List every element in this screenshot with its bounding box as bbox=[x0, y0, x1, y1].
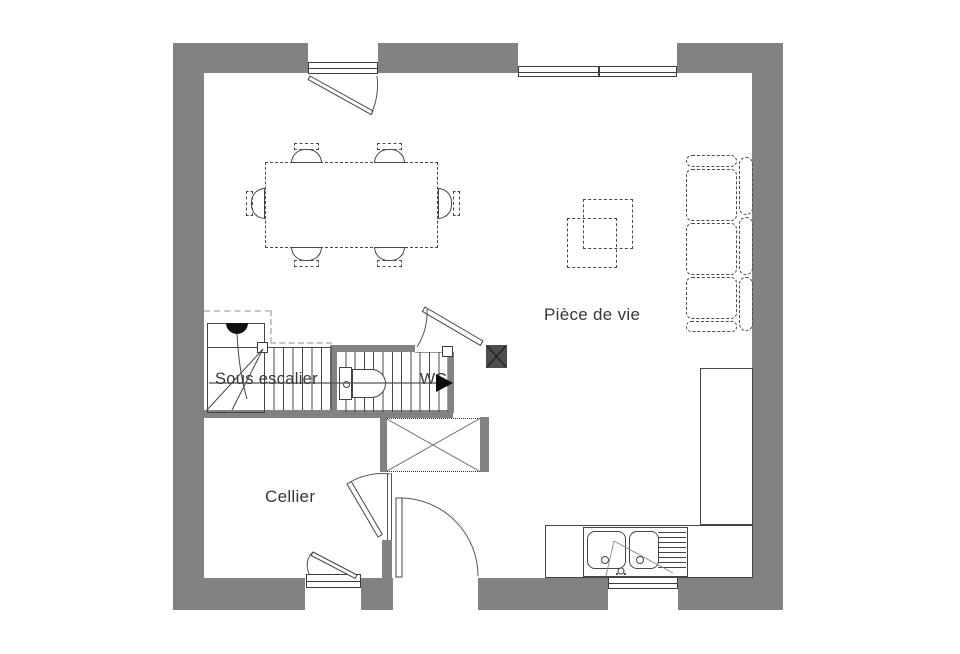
window-kitchen-midline bbox=[609, 583, 677, 584]
wall-left bbox=[173, 43, 204, 610]
sofa-seat-1 bbox=[686, 169, 737, 221]
toilet-bowl bbox=[352, 369, 386, 398]
kitchen-tall-unit bbox=[700, 368, 753, 525]
coffee-table-front bbox=[567, 218, 617, 268]
sofa-backrest-2 bbox=[739, 217, 753, 275]
floor-above-outline-2 bbox=[270, 310, 272, 343]
wall-tech-right bbox=[480, 417, 489, 472]
wall-bottom-segment-4 bbox=[678, 578, 783, 610]
chair-seat-left bbox=[251, 188, 265, 219]
floor-plan: WC bbox=[0, 0, 960, 654]
sink-drain-right bbox=[636, 556, 644, 564]
sofa-seat-2 bbox=[686, 223, 737, 275]
floor-above-outline-3 bbox=[270, 342, 332, 344]
wall-entry-stub bbox=[382, 540, 392, 578]
wc-door-swing-arc bbox=[417, 309, 427, 347]
sink-drain-left bbox=[601, 556, 609, 564]
wall-wc-right bbox=[448, 352, 454, 413]
chair-seat-bottom-2 bbox=[374, 247, 405, 261]
sofa-backrest-3 bbox=[739, 277, 753, 331]
wall-bottom-segment-3 bbox=[478, 578, 608, 610]
chair-seat-top-1 bbox=[291, 149, 322, 163]
wc-door-leaf bbox=[422, 307, 483, 345]
sofa-backrest-1 bbox=[739, 157, 753, 215]
wall-bottom-segment-2 bbox=[361, 578, 393, 610]
chair-seat-right bbox=[438, 188, 452, 219]
top-left-door-swing-arc bbox=[372, 76, 378, 112]
wall-top-segment-2 bbox=[378, 43, 518, 73]
cellar-door-leaf bbox=[347, 482, 382, 538]
chair-seat-top-2 bbox=[374, 149, 405, 163]
window-cellar bbox=[306, 574, 361, 588]
wall-top-segment-1 bbox=[173, 43, 308, 73]
dining-table bbox=[265, 162, 438, 248]
sofa-armrest-bottom bbox=[686, 321, 737, 332]
sofa-armrest-top bbox=[686, 155, 737, 167]
wall-tech-left bbox=[380, 417, 387, 472]
wall-bottom-segment-1 bbox=[173, 578, 305, 610]
room-label-cellar: Cellier bbox=[265, 487, 315, 507]
partition-cellier bbox=[387, 473, 392, 540]
entrance-door-leaf bbox=[396, 498, 402, 577]
door-frame-top-left-midline bbox=[309, 68, 377, 69]
window-top-mullion bbox=[598, 67, 600, 76]
wall-right bbox=[752, 43, 783, 610]
wall-wc-top bbox=[332, 345, 415, 352]
plan-linework bbox=[0, 0, 960, 654]
stair-newel-left bbox=[257, 342, 268, 353]
stair-newel-right bbox=[442, 346, 453, 357]
room-label-wc: WC bbox=[420, 371, 447, 389]
door-frame-top-left bbox=[308, 62, 378, 74]
top-left-door-leaf bbox=[308, 76, 373, 115]
crossed-square-icon bbox=[486, 345, 507, 368]
floor-above-outline-1 bbox=[204, 310, 271, 312]
toilet-flush-button bbox=[343, 381, 350, 388]
chair-back-bottom-1 bbox=[294, 260, 319, 267]
window-cellar-midline bbox=[307, 581, 360, 582]
sink-basin-right bbox=[629, 531, 659, 569]
window-top bbox=[518, 66, 677, 77]
chair-back-bottom-2 bbox=[377, 260, 402, 267]
chair-seat-bottom-1 bbox=[291, 247, 322, 261]
cellar-window-arc bbox=[307, 552, 313, 574]
chair-back-right bbox=[453, 191, 460, 216]
entrance-door-swing-arc bbox=[402, 498, 478, 576]
room-label-living: Pièce de vie bbox=[544, 305, 640, 325]
sink-drainer-grooves bbox=[658, 532, 686, 570]
technical-duct-box bbox=[387, 418, 480, 472]
under-stair-closet bbox=[207, 323, 265, 413]
sofa-seat-3 bbox=[686, 277, 737, 319]
room-label-under-stairs: Sous escalier bbox=[215, 370, 318, 389]
cellar-door-swing-arc bbox=[347, 474, 390, 484]
